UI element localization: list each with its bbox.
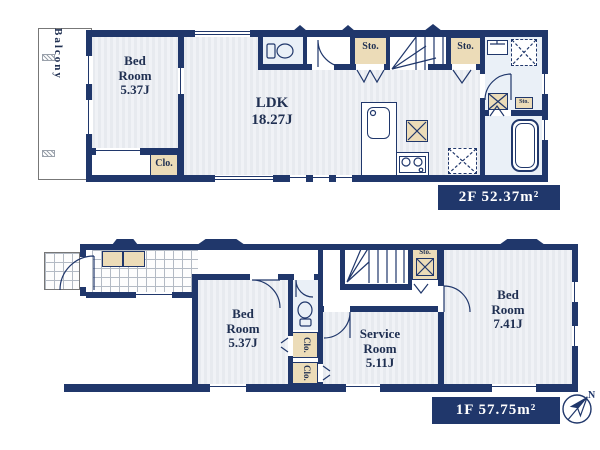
- wall: [192, 274, 198, 390]
- entrance-porch: [44, 252, 80, 290]
- window: [210, 384, 246, 392]
- storage-1f-hatch: [416, 258, 434, 276]
- room-size: 5.11J: [330, 356, 430, 371]
- wall: [408, 246, 412, 284]
- shoe-cabinet: [123, 251, 145, 267]
- window: [346, 384, 380, 392]
- area-label-1f-text: 1F 57.75m²: [456, 402, 537, 419]
- floor-1f: Clo. Clo. Sto.: [0, 0, 600, 450]
- window: [572, 326, 579, 346]
- area-label-1f: 1F 57.75m²: [432, 397, 560, 424]
- wall: [572, 244, 578, 392]
- wall: [340, 244, 345, 284]
- toilet-1f-floor: [293, 280, 318, 330]
- room-name: Service Room: [352, 327, 408, 356]
- vent-mark: [112, 239, 138, 245]
- vent-mark: [197, 239, 245, 245]
- entrance-door-opening: [80, 257, 86, 287]
- door-opening: [324, 306, 350, 312]
- room-size: 5.37J: [201, 336, 285, 351]
- door-opening: [438, 286, 444, 312]
- door-opening: [294, 274, 314, 280]
- door-opening: [250, 274, 278, 280]
- room-size: 7.41J: [458, 317, 558, 332]
- window: [572, 282, 579, 302]
- closet-1f-upper-label: Clo.: [296, 332, 312, 358]
- wall: [340, 284, 412, 290]
- stairs-1f-floor: [345, 250, 408, 284]
- closet-1f-lower-label: Clo.: [296, 361, 312, 385]
- bedroom-large-label: Bed Room 7.41J: [458, 288, 558, 332]
- window: [136, 292, 172, 298]
- service-room-label: Service Room 5.11J: [330, 327, 430, 371]
- vent-mark: [499, 239, 545, 245]
- closet-opening: [288, 336, 293, 356]
- wall: [438, 244, 444, 392]
- closet-opening: [318, 364, 323, 382]
- room-name: Bed Room: [218, 307, 268, 336]
- shoe-cabinet: [102, 251, 123, 267]
- window: [492, 384, 536, 392]
- wall: [288, 274, 293, 390]
- bedroom-small-label: Bed Room 5.37J: [201, 307, 285, 351]
- room-name: Bed Room: [483, 288, 533, 317]
- floor-plan: Balcony Sto. Sto. Clo.: [0, 0, 600, 450]
